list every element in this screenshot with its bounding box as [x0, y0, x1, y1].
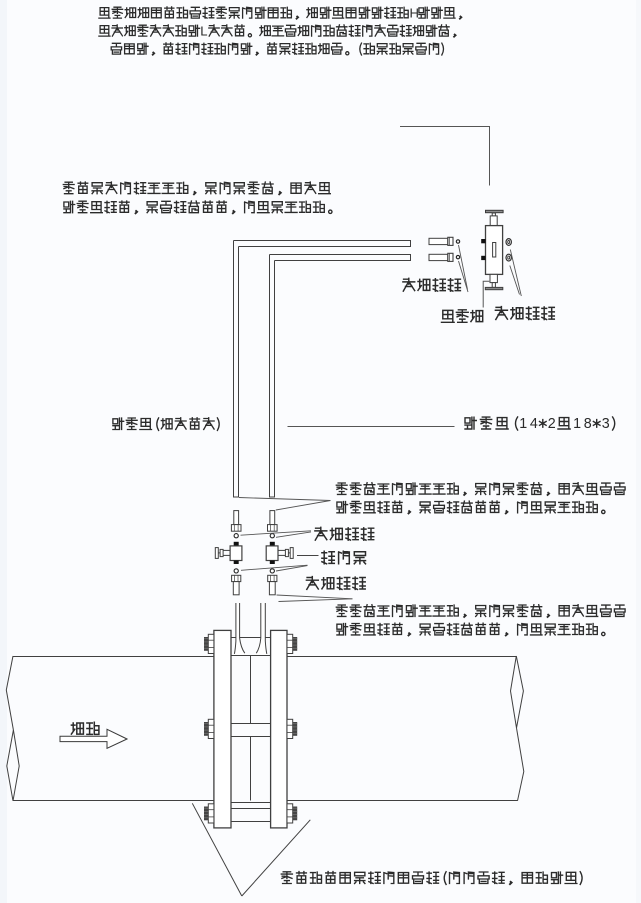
svg-text:2: 2 [548, 416, 556, 432]
svg-text:L: L [200, 23, 207, 38]
svg-text:H: H [410, 5, 419, 20]
svg-text:3: 3 [602, 416, 610, 432]
